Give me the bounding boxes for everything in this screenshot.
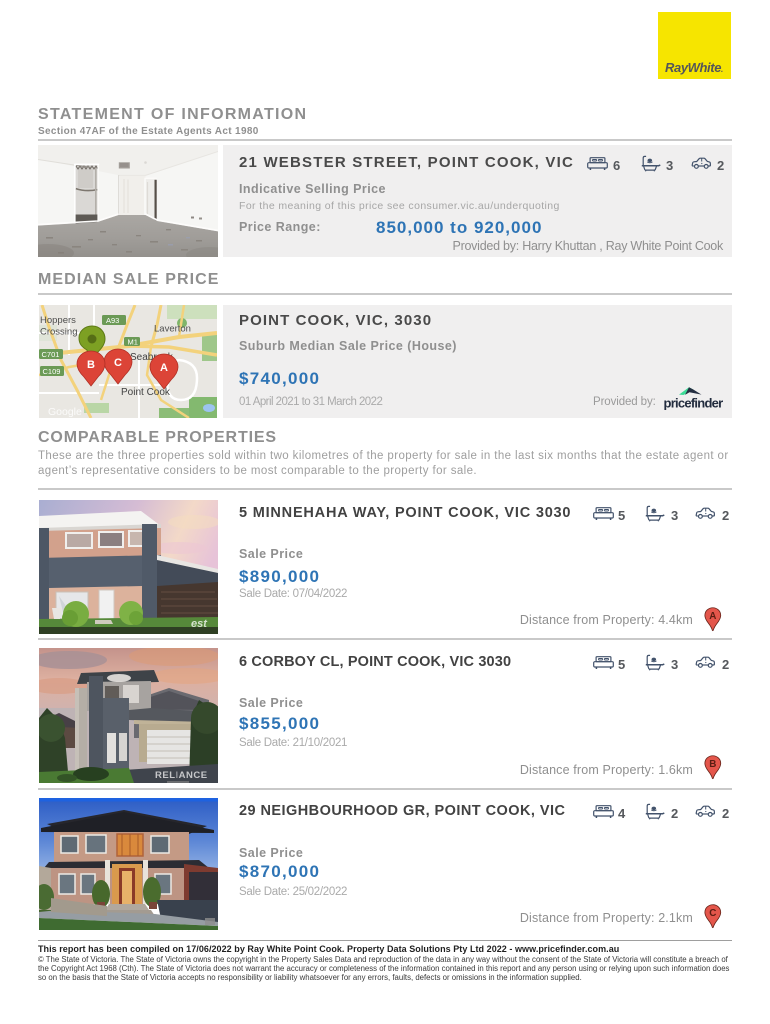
svg-text:A: A bbox=[160, 362, 168, 374]
svg-text:B: B bbox=[709, 759, 716, 770]
svg-text:M1: M1 bbox=[128, 337, 138, 346]
svg-text:A: A bbox=[709, 611, 716, 622]
svg-text:A93: A93 bbox=[106, 316, 119, 325]
svg-text:Crossing: Crossing bbox=[40, 327, 78, 338]
svg-text:Google: Google bbox=[48, 406, 82, 418]
svg-text:Hoppers: Hoppers bbox=[40, 315, 76, 326]
svg-text:C: C bbox=[114, 357, 122, 369]
svg-text:B: B bbox=[87, 359, 95, 371]
svg-text:pricefinder: pricefinder bbox=[664, 396, 724, 411]
svg-text:C109: C109 bbox=[43, 367, 61, 376]
svg-text:Laverton: Laverton bbox=[154, 324, 191, 335]
svg-text:C701: C701 bbox=[42, 350, 60, 359]
svg-text:C: C bbox=[709, 908, 716, 919]
